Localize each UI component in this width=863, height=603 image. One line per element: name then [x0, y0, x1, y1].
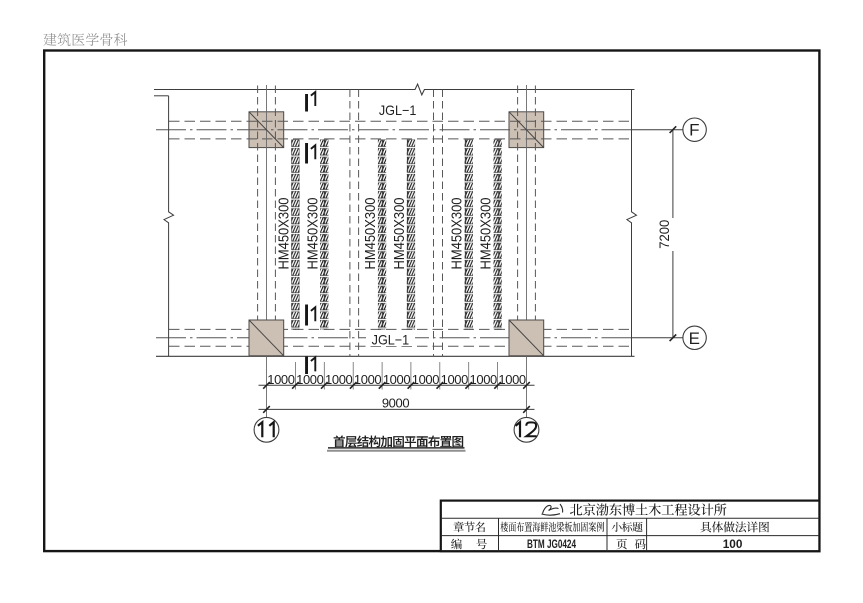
svg-text:1000: 1000: [498, 372, 525, 387]
svg-text:HM450X300: HM450X300: [305, 198, 321, 270]
svg-text:HM450X300: HM450X300: [450, 198, 466, 270]
svg-text:HM450X300: HM450X300: [276, 198, 292, 270]
svg-text:1000: 1000: [412, 372, 439, 387]
svg-text:100: 100: [723, 537, 743, 551]
svg-text:1000: 1000: [296, 372, 323, 387]
svg-text:F: F: [689, 121, 699, 140]
svg-text:1000: 1000: [470, 372, 497, 387]
svg-text:9000: 9000: [382, 396, 409, 411]
svg-text:JGL−1: JGL−1: [379, 102, 417, 118]
svg-text:E: E: [689, 329, 700, 348]
svg-text:7200: 7200: [657, 220, 672, 249]
svg-text:HM450X300: HM450X300: [392, 198, 408, 270]
svg-text:1000: 1000: [441, 372, 468, 387]
svg-text:HM450X300: HM450X300: [479, 198, 495, 270]
svg-text:HM450X300: HM450X300: [363, 198, 379, 270]
svg-text:1000: 1000: [267, 372, 294, 387]
svg-text:JGL−1: JGL−1: [372, 331, 410, 347]
svg-text:BTM JG0424: BTM JG0424: [527, 539, 576, 551]
svg-text:1000: 1000: [325, 372, 352, 387]
svg-text:1000: 1000: [383, 372, 410, 387]
svg-text:1000: 1000: [354, 372, 381, 387]
